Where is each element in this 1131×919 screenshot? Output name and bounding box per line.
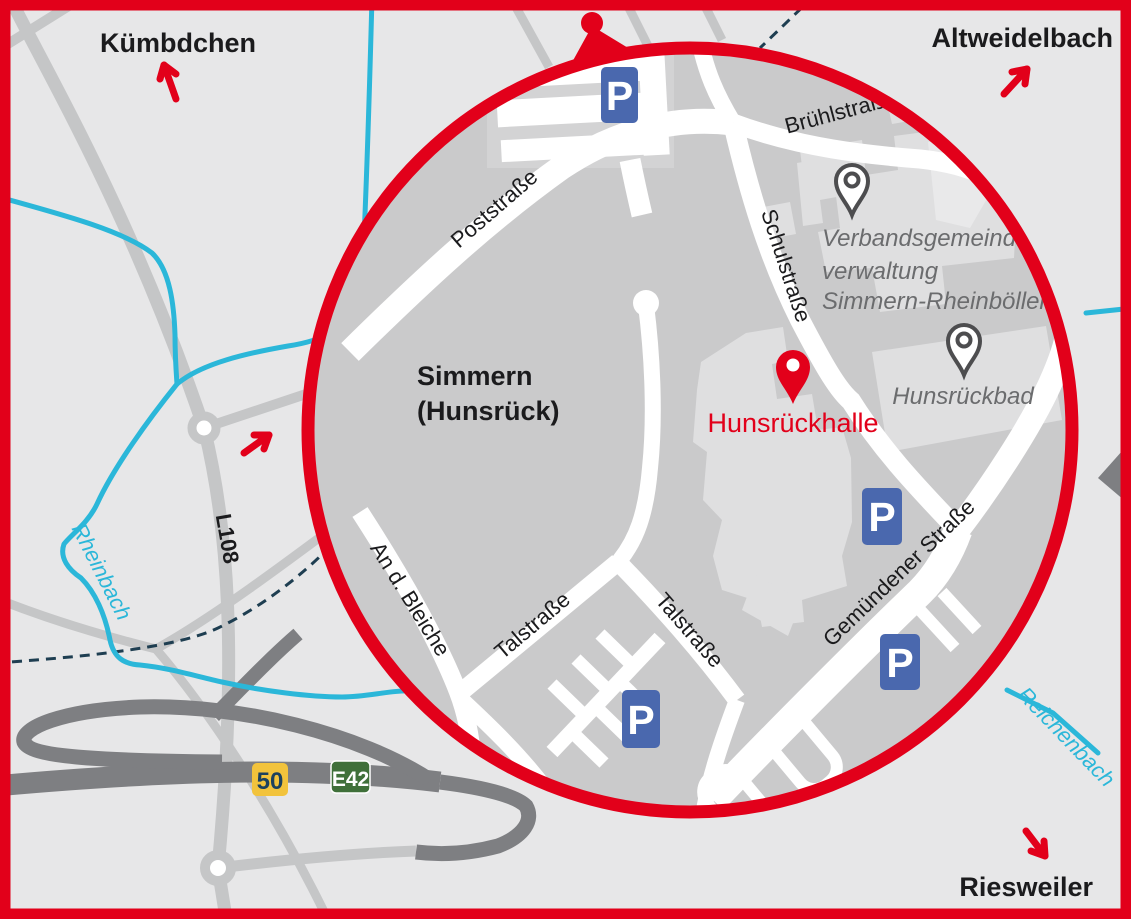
town-label-line1: Simmern xyxy=(417,361,533,391)
badge-e42: E42 xyxy=(331,761,370,793)
badge-b50: 50 xyxy=(252,763,288,796)
region-label-altweidelbach: Altweidelbach xyxy=(931,23,1113,53)
roundabout-south xyxy=(205,855,231,881)
administration-label-line1: Verbandsgemeinde- xyxy=(822,225,1037,252)
region-label-kuembdchen: Kümbdchen xyxy=(100,28,256,58)
parking-letter: P xyxy=(627,697,654,743)
region-label-riesweiler: Riesweiler xyxy=(959,872,1093,902)
parking-letter: P xyxy=(606,73,633,119)
administration-label-line3: Simmern-Rheinböllen xyxy=(822,288,1053,315)
cul-de-sac xyxy=(633,290,659,316)
badge-e42-label: E42 xyxy=(332,768,369,791)
town-label-line2: (Hunsrück) xyxy=(417,396,560,426)
venue-label: Hunsrückhalle xyxy=(707,408,878,438)
bath-label: Hunsrückbad xyxy=(892,383,1034,410)
parking-icon: P xyxy=(622,690,660,748)
parking-icon: P xyxy=(880,634,920,690)
parking-icon: P xyxy=(601,67,638,123)
badge-b50-label: 50 xyxy=(257,768,284,795)
parking-letter: P xyxy=(868,494,895,540)
parking-icon: P xyxy=(862,488,902,545)
parking-letter: P xyxy=(886,640,913,686)
parking-entrance xyxy=(630,160,642,215)
administration-label-line2: verwaltung xyxy=(822,258,939,285)
roundabout-north xyxy=(192,416,216,440)
site-map: P P P P xyxy=(0,0,1131,919)
